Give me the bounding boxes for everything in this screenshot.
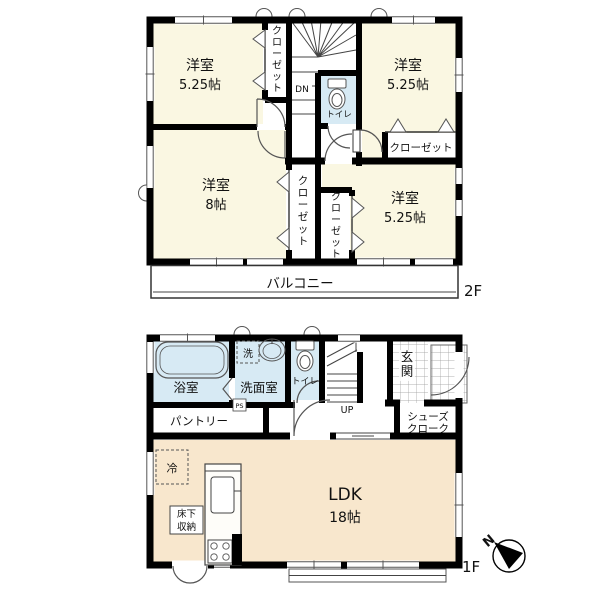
- floor-storage-line1: 床下: [177, 509, 196, 520]
- toilet1f-fixture: [296, 341, 314, 371]
- floor2-label: 2F: [464, 282, 482, 300]
- kitchen-sink: [211, 477, 234, 513]
- ldk-door-gap: [172, 561, 208, 570]
- closet1-label: クローゼット: [272, 25, 282, 95]
- ldk-name: LDK: [328, 485, 363, 505]
- kitchen-counter: [205, 464, 242, 565]
- bedroom1-name: 洋室: [186, 58, 214, 74]
- balcony: バルコニー: [151, 266, 458, 299]
- balcony-label: バルコニー: [266, 276, 333, 292]
- closet3-label: クローゼット: [298, 175, 309, 247]
- refrigerator-label: 冷: [167, 462, 178, 475]
- ldk-size: 18帖: [329, 510, 361, 526]
- bedroom1-size: 5.25帖: [179, 78, 221, 93]
- floor1-label: 1F: [462, 558, 480, 576]
- floorplan-svg: DN: [0, 0, 600, 600]
- first-floor: UP: [146, 327, 481, 584]
- floor-storage: 床下 収納: [170, 506, 203, 534]
- vents-1f: [234, 327, 320, 335]
- closet4-label: クローゼット: [331, 191, 341, 261]
- washroom-label: 洗面室: [240, 380, 278, 395]
- bedroom4-size: 5.25帖: [384, 211, 426, 226]
- bedroom3-floor: [153, 130, 286, 259]
- sliding-door-symbol: [336, 433, 390, 439]
- toilet1f-label: トイレ: [291, 377, 318, 387]
- stairs-down-label: DN: [295, 85, 309, 95]
- washer-label: 洗: [243, 348, 253, 360]
- floorplan-image: DN: [0, 0, 600, 600]
- bedroom3-size: 8帖: [205, 198, 226, 213]
- floor-storage-line2: 収納: [177, 521, 196, 533]
- compass: N: [480, 532, 525, 572]
- toilet2f-label: トイレ: [326, 110, 352, 120]
- door-panel-bedroom2: [353, 130, 360, 152]
- entrance-label: 玄関: [401, 349, 414, 378]
- toilet2f-fixture: [328, 79, 346, 109]
- bedroom2-size: 5.25帖: [387, 78, 429, 93]
- ps-box: PS: [233, 399, 246, 411]
- bedroom4-name: 洋室: [391, 191, 419, 207]
- pantry-label: パントリー: [170, 414, 228, 428]
- closet2-label: クローゼット: [390, 142, 453, 154]
- bedroom3-name: 洋室: [202, 178, 230, 194]
- terrace-step: [289, 569, 446, 582]
- kitchen-wall-stub: [232, 534, 242, 565]
- stairs-up-label: UP: [341, 405, 354, 416]
- stairs-1f: UP: [327, 338, 357, 416]
- shoes-closet-line1: シューズ: [407, 410, 448, 423]
- bathroom-label: 浴室: [173, 380, 198, 395]
- front-door-gap: [455, 352, 464, 398]
- bedroom2-name: 洋室: [394, 58, 422, 74]
- ps-label: PS: [235, 402, 243, 410]
- shoes-closet-line2: クローク: [407, 423, 449, 435]
- second-floor: DN: [139, 9, 483, 301]
- ldk-floor: [153, 440, 456, 562]
